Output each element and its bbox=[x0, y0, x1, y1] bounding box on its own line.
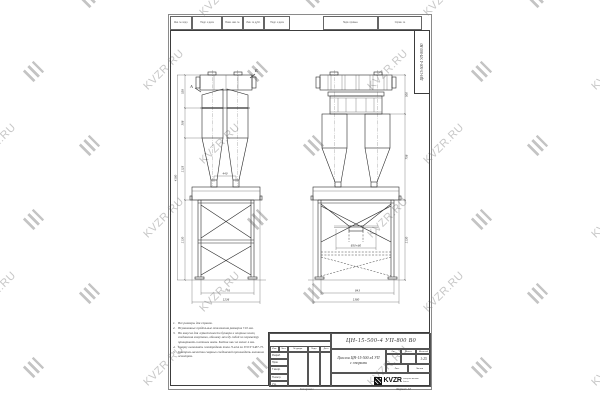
sheets-cell: Листов bbox=[408, 364, 431, 373]
dimension-label: 1130 bbox=[181, 236, 185, 243]
frame-cell: Инв. № подл. bbox=[170, 16, 192, 30]
title-block: Изм. Лист № докум. Подп. Дата Разраб. Пр… bbox=[268, 332, 430, 386]
note-text: Контроль качества сварных соединений про… bbox=[178, 350, 267, 358]
section-label-a: А bbox=[189, 84, 193, 89]
note-text: На конусах для герметичности бункера и о… bbox=[178, 331, 267, 343]
scale-value: 1:25 bbox=[420, 357, 427, 361]
role-label: Разраб. bbox=[272, 354, 281, 357]
role-label: Н.контр. bbox=[272, 376, 281, 379]
watermark-logo-icon bbox=[471, 209, 492, 230]
watermark-text: KVZR.RU bbox=[589, 343, 600, 388]
watermark-logo-icon bbox=[79, 0, 100, 8]
section-label-b: Б bbox=[254, 68, 258, 73]
frame-cell-label: Инв. № подл. bbox=[174, 22, 188, 24]
watermark-text: KVZR.RU bbox=[0, 269, 18, 314]
dimension-label: 4180 bbox=[173, 174, 177, 181]
dimension-label: 1130 bbox=[405, 236, 409, 243]
side-view: 850×60 500 758 1130 843 1380 bbox=[308, 70, 409, 304]
role-label: Утв. bbox=[272, 383, 277, 386]
dimension-label: 1380 bbox=[353, 298, 360, 302]
role-row: Утв. bbox=[270, 381, 288, 387]
kvzr-logo-subline2: kvzr.ru bbox=[403, 381, 409, 383]
cyclone-drawing-views: А Б 440 528 308 1125 1130 4180 776 1236 bbox=[170, 30, 430, 330]
dimension-label: 1236 bbox=[223, 298, 230, 302]
note-item: 5. Контроль качества сварных соединений … bbox=[173, 350, 267, 358]
sheets-label: Листов bbox=[416, 368, 423, 370]
role-row: Т.контр. bbox=[270, 366, 288, 373]
watermark-logo-icon bbox=[23, 357, 44, 378]
grid-cell bbox=[288, 352, 308, 387]
dimension-label: 500 bbox=[405, 92, 409, 97]
frame-cell-label: Подп. и дата bbox=[270, 22, 284, 24]
sheet-label: Лист bbox=[395, 368, 400, 370]
scale-value-cell: 1:25 bbox=[416, 354, 431, 364]
frame-cell: Взам. инв. № bbox=[222, 16, 243, 30]
watermark-logo-icon bbox=[23, 61, 44, 82]
note-item: 4. Сварку выполнять электродами типа Э-4… bbox=[173, 345, 267, 349]
note-item: 1. Все размеры для справок. bbox=[173, 321, 267, 325]
frame-cell: Подп. и дата bbox=[192, 16, 222, 30]
note-text: Сварку выполнять электродами типа Э-42А … bbox=[178, 345, 264, 349]
frame-cell-label: Взам. инв. № bbox=[225, 22, 239, 24]
dimension-label: 776 bbox=[225, 289, 230, 293]
watermark-text: KVZR.RU bbox=[589, 195, 600, 240]
role-label: Пров. bbox=[272, 361, 278, 364]
revision-grid: Изм. Лист № докум. Подп. Дата Разраб. Пр… bbox=[269, 333, 331, 387]
drawing-title-cell: Циклон ЦН-15-500 х4 УП с опорами bbox=[331, 349, 386, 373]
kvzr-logo-subtext: интернет-магазин kvzr.ru bbox=[403, 378, 419, 383]
frame-cell: Инв. № дубл. bbox=[243, 16, 264, 30]
watermark-logo-icon bbox=[471, 61, 492, 82]
mass-label: Масса bbox=[405, 351, 411, 353]
note-text: Неуказанные предельные отклонения размер… bbox=[178, 326, 254, 330]
col-header-label: № докум. bbox=[293, 348, 303, 350]
dimension-label: 528 bbox=[181, 89, 185, 94]
role-row: Н.контр. bbox=[270, 374, 288, 381]
document-number-cell: ЦН-15-500-4 УП-800 В0 bbox=[331, 333, 431, 349]
drawing-title-line2: с опорами bbox=[350, 361, 367, 366]
frame-cell-label: Справ. № bbox=[395, 22, 405, 24]
frame-cell-label: Подп. и дата bbox=[200, 22, 214, 24]
dimension-label: 758 bbox=[405, 154, 409, 159]
frame-cell: Подп. и дата bbox=[264, 16, 290, 30]
dimension-label: 440 bbox=[223, 172, 228, 176]
company-cell: KVZR интернет-магазин kvzr.ru bbox=[331, 373, 431, 387]
note-item: 3. На конусах для герметичности бункера … bbox=[173, 331, 267, 343]
dimension-label: 850×60 bbox=[351, 244, 362, 248]
note-text: Все размеры для справок. bbox=[178, 321, 213, 325]
kvzr-logo-text: KVZR bbox=[384, 377, 402, 384]
dimension-label: 308 bbox=[181, 120, 185, 125]
dimension-label: 1125 bbox=[181, 165, 185, 172]
watermark-logo-icon bbox=[303, 0, 324, 8]
mass-cell bbox=[401, 354, 416, 364]
watermark-logo-icon bbox=[471, 357, 492, 378]
watermark-text: KVZR.RU bbox=[0, 0, 18, 19]
grid-cell bbox=[320, 352, 331, 387]
frame-cell: Справ. № bbox=[378, 16, 422, 30]
watermark-logo-icon bbox=[527, 0, 548, 8]
col-header-label: Изм. bbox=[272, 348, 277, 350]
kvzr-logo-icon bbox=[374, 377, 382, 385]
watermark-logo-icon bbox=[527, 283, 548, 304]
watermark-logo-icon bbox=[79, 135, 100, 156]
document-number: ЦН-15-500-4 УП-800 В0 bbox=[346, 338, 416, 344]
dimension-label: 843 bbox=[355, 289, 360, 293]
technical-notes: 1. Все размеры для справок. 2. Неуказанн… bbox=[173, 321, 267, 359]
role-row: Разраб. bbox=[270, 352, 288, 359]
col-header-label: Лист bbox=[281, 348, 286, 350]
frame-cell-label: Инв. № дубл. bbox=[246, 22, 260, 24]
sheet-cell: Лист bbox=[386, 364, 408, 373]
col-header-label: Дата bbox=[324, 348, 329, 350]
col-header-label: Подп. bbox=[311, 348, 317, 350]
watermark-text: KVZR.RU bbox=[589, 47, 600, 92]
copied-label: Копировал bbox=[300, 387, 313, 391]
frame-cell: Перв. примен. bbox=[323, 16, 378, 30]
watermark-text: KVZR.RU bbox=[0, 121, 18, 166]
role-label: Т.контр. bbox=[272, 368, 281, 371]
role-row: Пров. bbox=[270, 359, 288, 366]
format-label: Формат А3 bbox=[396, 387, 411, 391]
frame-cell-label: Перв. примен. bbox=[343, 22, 358, 24]
watermark-logo-icon bbox=[79, 283, 100, 304]
grid-cell bbox=[308, 352, 320, 387]
grid-line bbox=[270, 340, 331, 342]
watermark-logo-icon bbox=[527, 135, 548, 156]
front-view: А Б 440 528 308 1125 1130 4180 776 1236 bbox=[173, 68, 266, 304]
company-logo: KVZR интернет-магазин kvzr.ru bbox=[374, 377, 419, 385]
note-item: 2. Неуказанные предельные отклонения раз… bbox=[173, 326, 267, 330]
watermark-logo-icon bbox=[23, 209, 44, 230]
lit-cell bbox=[386, 354, 401, 364]
lit-label: Лит. bbox=[391, 351, 395, 353]
scale-label: Масштаб bbox=[419, 351, 428, 353]
